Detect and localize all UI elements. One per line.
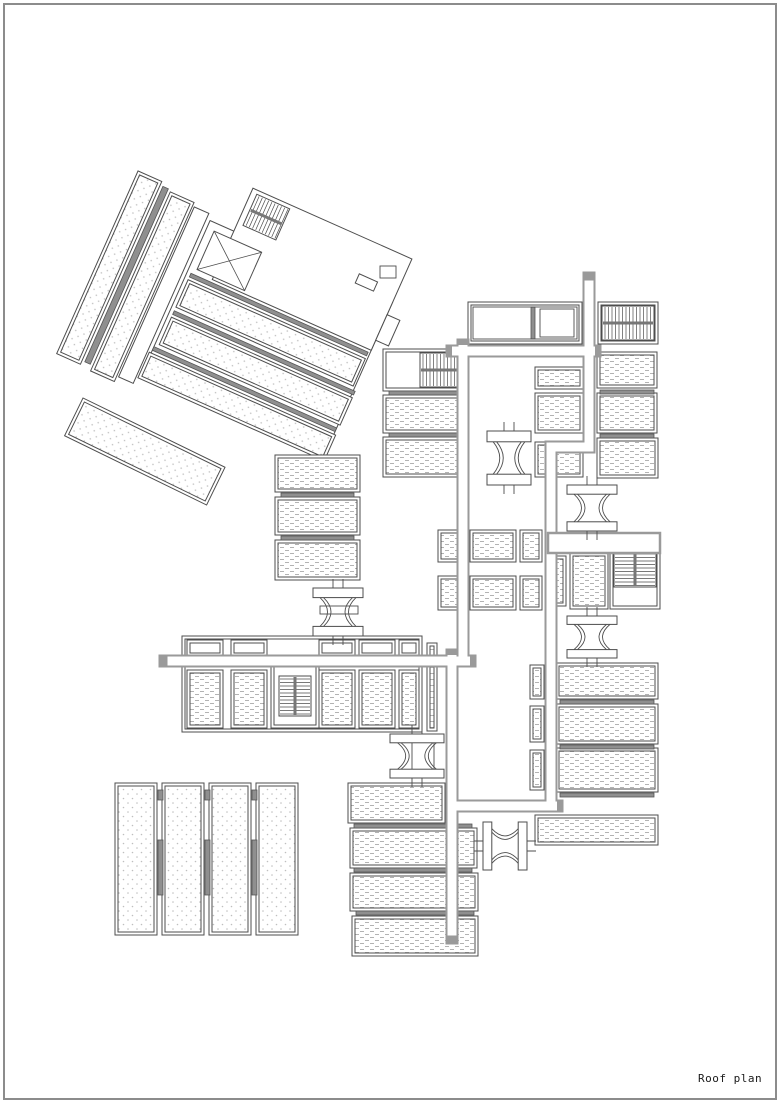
vent-curve: [320, 598, 356, 627]
vent-connector: [487, 422, 531, 494]
stair-rail: [603, 322, 653, 325]
gravel-panel: [118, 786, 154, 932]
vent-body: [390, 725, 444, 787]
vent-flange: [487, 474, 531, 485]
roof-panel: [533, 668, 541, 696]
roof-panel: [533, 709, 541, 739]
gravel-panel: [259, 786, 295, 932]
roof-panel: [523, 533, 539, 559]
vent-curve: [492, 829, 518, 864]
stair-rail: [294, 677, 297, 715]
roof-panel: [402, 643, 416, 653]
gravel-panel: [212, 786, 248, 932]
roof-plan-sheet: Roof plan: [0, 0, 780, 1103]
roof-panel: [278, 543, 357, 577]
roof-panel: [351, 786, 442, 820]
stair-rail: [421, 369, 457, 372]
roof-panel: [402, 673, 416, 725]
vent-body: [474, 822, 536, 870]
beam-bar: [560, 793, 654, 797]
vent-flange: [313, 588, 363, 598]
beam-bar: [205, 790, 210, 800]
beam-bar: [158, 840, 163, 895]
beam-bar: [531, 307, 535, 339]
roof-plan-drawing: [0, 0, 780, 1103]
bridge-beam: [548, 533, 660, 553]
vent-flange: [487, 431, 531, 442]
vent-curve: [574, 494, 610, 522]
roof-panel: [234, 673, 264, 725]
vent-curve: [497, 442, 522, 474]
beam-bar: [560, 700, 654, 704]
beam-bar: [252, 840, 257, 895]
beam-bar: [389, 391, 457, 395]
gravel-panel: [69, 402, 221, 501]
beam-bar: [600, 390, 654, 394]
roof-panel: [362, 643, 392, 653]
vent-curve: [493, 442, 525, 474]
roof-panel: [322, 673, 352, 725]
vent-body: [487, 422, 531, 494]
vent-flange: [313, 626, 363, 636]
detail-outline: [320, 606, 358, 614]
beam-bar: [205, 840, 210, 895]
tilted-strip: [65, 398, 225, 505]
roof-panel: [362, 673, 392, 725]
roof-panel: [278, 458, 357, 489]
roof-panel: [538, 396, 580, 430]
vent-flange: [390, 734, 444, 743]
vent-flange: [567, 616, 617, 624]
roof-panel: [386, 398, 460, 430]
vent-body: [567, 607, 617, 667]
vent-flange: [567, 650, 617, 658]
vent-connector: [567, 476, 617, 540]
vent-flange: [567, 485, 617, 494]
roof-panel: [322, 643, 352, 653]
vent-flange: [390, 769, 444, 778]
beam-bar: [281, 536, 354, 540]
vent-connector: [474, 822, 536, 870]
roof-panel: [473, 579, 513, 607]
roof-panel: [600, 355, 654, 385]
vent-flange: [567, 522, 617, 531]
beam-bar: [389, 433, 457, 437]
roof-panel: [523, 579, 539, 607]
vent-connector: [390, 725, 444, 787]
roof-panel: [234, 643, 264, 653]
vent-curve: [574, 624, 610, 649]
vent-body: [567, 476, 617, 540]
beam-bar: [158, 790, 163, 800]
roof-panel: [533, 753, 541, 787]
roof-panel: [278, 500, 357, 532]
gravel-panel: [165, 786, 201, 932]
beam-bar: [600, 434, 654, 438]
roof-panel: [190, 643, 220, 653]
vent-flange: [483, 822, 492, 870]
roof-panel: [559, 666, 655, 696]
roof-panel: [538, 818, 655, 842]
vent-connector: [313, 579, 363, 645]
drawing-title: Roof plan: [698, 1072, 762, 1085]
roof-panel: [600, 441, 655, 475]
roof-panel: [573, 556, 605, 606]
roof-panel: [473, 533, 513, 559]
vent-flange: [518, 822, 527, 870]
vent-connector: [567, 607, 617, 667]
beam-bar: [560, 745, 654, 749]
roof-panel: [600, 396, 654, 430]
roof-panel: [190, 673, 220, 725]
vent-body: [313, 579, 363, 645]
stair-rail: [634, 552, 637, 586]
vent-curve: [398, 743, 437, 769]
roof-panel: [559, 751, 655, 789]
beam-bar: [252, 790, 257, 800]
roof-panel: [538, 370, 580, 386]
roof-panel: [471, 305, 579, 341]
beam-bar: [281, 493, 354, 497]
roof-panel: [386, 440, 460, 474]
roof-panel: [559, 707, 655, 741]
